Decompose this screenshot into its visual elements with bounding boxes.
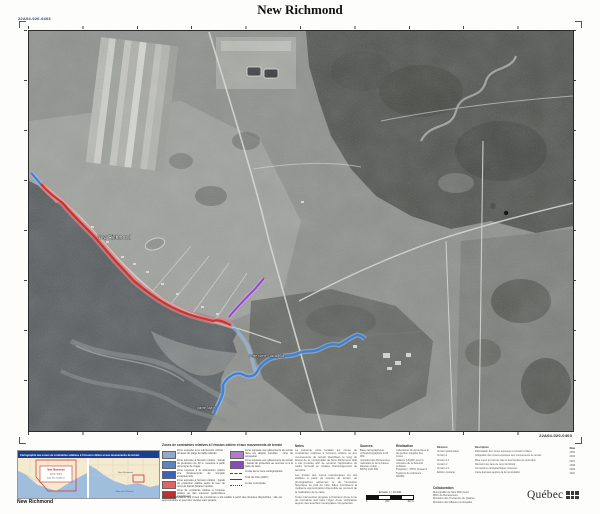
sheet-code-bottom-right: 22A04-020-0403 xyxy=(470,433,572,438)
corner-mark xyxy=(575,21,582,28)
legend-swatch xyxy=(230,461,244,469)
legend-line-item: Limite municipale xyxy=(230,482,292,488)
svg-text:baie des Chaleurs: baie des Chaleurs xyxy=(47,477,66,480)
svg-text:Baie des Chaleurs: Baie des Chaleurs xyxy=(116,491,135,493)
svg-text:pointe Taylor: pointe Taylor xyxy=(50,473,63,476)
solid-line-symbol xyxy=(230,479,242,480)
quebec-flag-icon xyxy=(566,491,579,499)
legend: Zones de contraintes relatives à l'érosi… xyxy=(162,444,292,448)
revision-table: Révision Description Date Version prélim… xyxy=(437,447,578,476)
corner-mark xyxy=(19,437,26,444)
map-label-place: New Richmond xyxy=(97,235,131,241)
table-row: Version 1Intégration des zones exposées … xyxy=(437,455,578,458)
notes-paragraph: La présente carte localise les zones de … xyxy=(295,449,357,472)
legend-swatch xyxy=(162,461,176,469)
dashed-line-symbol xyxy=(230,473,242,474)
legend-header: Zones de contraintes relatives à l'érosi… xyxy=(162,444,292,448)
svg-text:New Richmond: New Richmond xyxy=(118,472,134,474)
aerial-photo-map: New Richmond Petite rivière Cascapédia p… xyxy=(28,30,574,432)
inset-right-panel: New Richmond Baie des Chaleurs xyxy=(89,458,159,498)
dotted-line-symbol xyxy=(230,485,242,486)
legend-swatch xyxy=(162,471,176,479)
legend-swatch xyxy=(162,481,176,489)
notes-paragraph: Toute intervention projetée à l'intérieu… xyxy=(295,496,357,506)
map-label-point: pointe Taylor xyxy=(197,406,216,410)
legend-note: Note : la délimitation des zones de cont… xyxy=(162,497,282,503)
corner-mark xyxy=(19,21,26,28)
scale-bar: Échelle 1 / 10 000 0 200 400 m xyxy=(366,490,414,503)
notes-block: Notes La présente carte localise les zon… xyxy=(295,444,357,506)
corner-mark xyxy=(575,437,582,444)
inset-left-panel: New Richmond pointe Taylor baie des Chal… xyxy=(18,458,87,498)
location-inset-map: Cartographie des zones de contraintes re… xyxy=(17,450,160,499)
legend-item: Zone exposée aux glissements de terrain … xyxy=(230,460,292,470)
realisation-block: Réalisation Laboratoire de dynamique et … xyxy=(396,444,430,488)
svg-text:New Richmond: New Richmond xyxy=(47,469,65,472)
aerial-photo: New Richmond Petite rivière Cascapédia p… xyxy=(29,31,573,431)
legend-swatch xyxy=(162,451,176,459)
quebec-government-logo: Québec xyxy=(527,486,587,504)
inset-banner: Cartographie des zones de contraintes re… xyxy=(20,453,140,457)
legend-swatch xyxy=(230,451,244,459)
table-row: Édition couranteCarte déposée auprès de … xyxy=(437,472,578,475)
notes-paragraph: Les limites des zones représentées ont é… xyxy=(295,474,357,494)
collaboration-block: Collaboration Municipalité de New Richmo… xyxy=(433,486,513,504)
inset-sheet-label: New Richmond xyxy=(17,499,53,505)
frame-ticks-top xyxy=(28,26,572,29)
map-label-river: Petite rivière Cascapédia xyxy=(249,354,285,358)
page-title: New Richmond xyxy=(0,2,600,18)
frame-ticks-left xyxy=(24,30,27,430)
